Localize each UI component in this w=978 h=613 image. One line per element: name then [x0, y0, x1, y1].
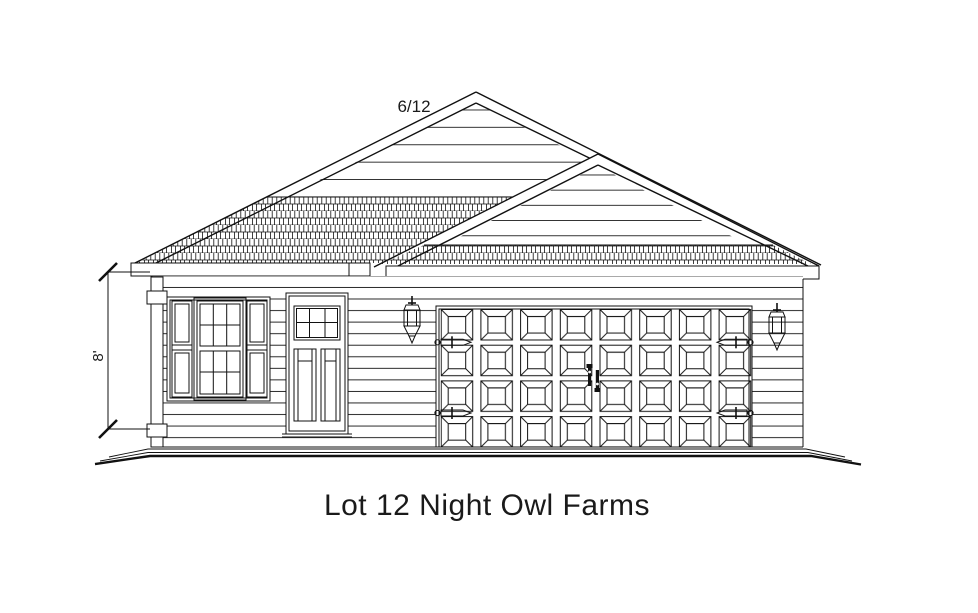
corner-board-bottom-cap [147, 424, 167, 437]
roof-pitch-label: 6/12 [397, 97, 430, 116]
corner-board-top-cap [147, 291, 167, 304]
height-dimension: 8' [90, 263, 150, 438]
grade-line-3 [95, 456, 861, 465]
ground-lines [95, 447, 861, 465]
drawing-title: Lot 12 Night Owl Farms [324, 489, 650, 522]
window-outer-frame [167, 297, 270, 401]
garage-roof-band [381, 245, 811, 264]
entry-door [282, 293, 352, 437]
wall-height-label: 8' [90, 350, 107, 361]
door-frame [286, 293, 348, 434]
left-fascia-board [131, 263, 370, 276]
elevation-drawing: 8' 6/12 Lot 12 Night Owl Farms [0, 0, 978, 613]
elevation-sheet: 8' 6/12 Lot 12 Night Owl Farms [0, 0, 978, 613]
triple-window [167, 297, 270, 401]
garage-door [435, 306, 753, 447]
